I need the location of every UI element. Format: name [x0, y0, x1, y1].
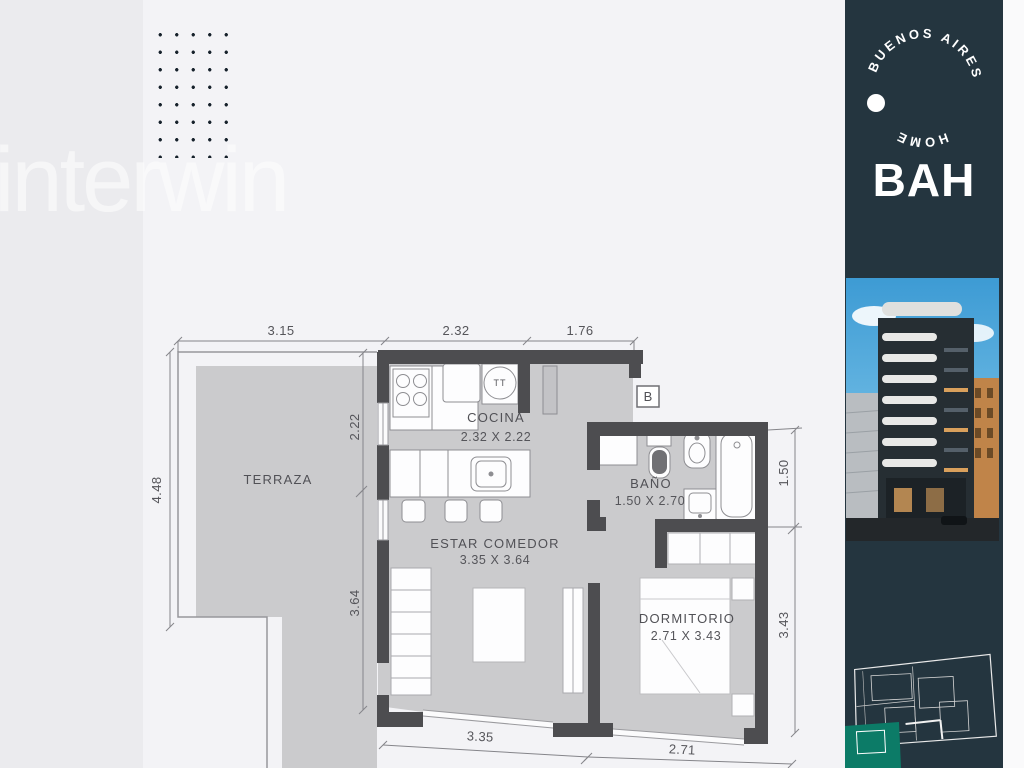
label-dormitorio: DORMITORIO: [639, 611, 735, 626]
table: [473, 588, 525, 662]
curved-crown: [882, 302, 962, 316]
bath-closet: [597, 431, 637, 465]
dim-bottom-2: 2.71: [668, 741, 696, 757]
label-bano: BAÑO: [630, 476, 672, 491]
dim-right-1: 1.50: [776, 460, 791, 487]
dim-right-2: 3.43: [776, 612, 791, 639]
neighbor-building-right: [971, 378, 999, 541]
logo-dot: [867, 94, 885, 112]
unit-badge-letter: B: [644, 389, 653, 404]
dim-bottom-1: 3.35: [466, 728, 494, 744]
teal-highlight-unit: [845, 722, 901, 768]
svg-text:BUENOS AIRES: BUENOS AIRES: [865, 26, 985, 82]
label-cocina: COCINA: [467, 410, 525, 425]
car: [941, 516, 967, 525]
dim-mid-1: 2.22: [347, 414, 362, 441]
stool: [445, 500, 467, 522]
right-background-strip: [1003, 0, 1024, 768]
size-estar: 3.35 X 3.64: [460, 553, 531, 567]
label-terraza: TERRAZA: [243, 472, 312, 487]
arc-text-bottom: HOME: [892, 128, 950, 150]
fridge: [543, 366, 557, 414]
bookshelf: [391, 568, 431, 695]
unit-badge: B: [637, 386, 659, 407]
dim-left-1: 4.48: [149, 477, 164, 504]
arc-text-top: BUENOS AIRES: [865, 26, 985, 82]
brochure-page: interwin: [0, 0, 1024, 768]
stool: [480, 500, 502, 522]
circular-logo: BUENOS AIRES HOME: [847, 8, 1001, 168]
kitchen-cabinet: [443, 364, 480, 402]
dim-top-2: 2.32: [443, 323, 470, 338]
brand-sidebar: BUENOS AIRES HOME BAH: [845, 0, 1003, 768]
bah-wordmark: BAH: [845, 153, 1003, 207]
nightstand: [732, 694, 754, 716]
size-dormitorio: 2.71 X 3.43: [651, 629, 722, 643]
street: [846, 518, 999, 541]
wardrobe: [668, 533, 756, 564]
dim-top-3: 1.76: [567, 323, 594, 338]
dim-mid-2: 3.64: [347, 590, 362, 617]
nightstand: [732, 578, 754, 600]
blueprint-thumbnail: [845, 628, 1003, 768]
label-tt-appliance: TT: [494, 378, 507, 388]
stool: [402, 500, 425, 522]
svg-text:HOME: HOME: [892, 128, 950, 150]
size-bano: 1.50 X 2.70: [615, 494, 686, 508]
building-photo: [846, 278, 999, 541]
dim-top-1: 3.15: [268, 323, 295, 338]
size-cocina: 2.32 X 2.22: [461, 430, 532, 444]
label-estar: ESTAR COMEDOR: [430, 536, 559, 551]
